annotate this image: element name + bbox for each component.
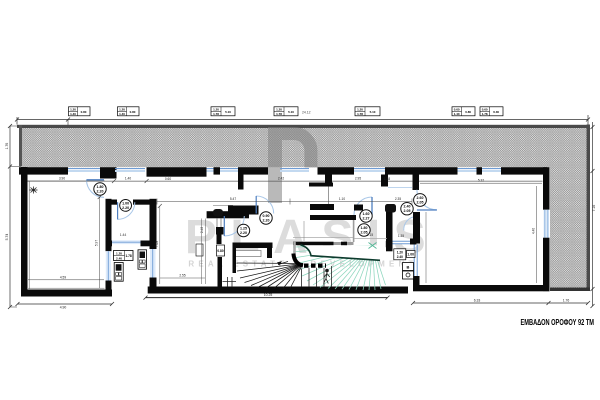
svg-text:2.40: 2.40	[397, 255, 403, 259]
svg-text:1.40: 1.40	[70, 112, 76, 116]
svg-text:1.40: 1.40	[454, 112, 460, 116]
svg-text:1.76: 1.76	[5, 143, 9, 150]
svg-text:0.60: 0.60	[454, 107, 460, 111]
svg-text:5.47: 5.47	[230, 197, 236, 201]
svg-text:1.40: 1.40	[125, 177, 131, 181]
svg-text:1.78: 1.78	[276, 112, 282, 116]
svg-text:2.20: 2.20	[263, 218, 270, 222]
svg-text:5.10: 5.10	[288, 110, 294, 114]
svg-text:5.97: 5.97	[95, 240, 99, 246]
svg-text:1.80: 1.80	[97, 185, 104, 189]
svg-text:24.12: 24.12	[302, 111, 311, 115]
svg-text:4.40: 4.40	[532, 228, 536, 234]
svg-text:1.00: 1.00	[122, 202, 129, 206]
svg-text:2.48: 2.48	[200, 227, 204, 233]
svg-text:2.20: 2.20	[97, 189, 104, 193]
svg-text:1.78: 1.78	[357, 112, 363, 116]
svg-text:1.40: 1.40	[119, 112, 125, 116]
svg-text:1.78: 1.78	[125, 254, 131, 258]
svg-text:7.16: 7.16	[592, 205, 596, 212]
svg-text:2.42: 2.42	[278, 177, 284, 181]
svg-text:10.25: 10.25	[264, 293, 273, 297]
svg-text:1.20: 1.20	[213, 107, 219, 111]
svg-text:1.20: 1.20	[276, 107, 282, 111]
svg-text:4.59: 4.59	[60, 275, 66, 279]
svg-text:0.80: 0.80	[130, 110, 136, 114]
svg-text:4.90: 4.90	[60, 306, 67, 310]
svg-text:1.15: 1.15	[367, 233, 373, 237]
svg-text:2.40: 2.40	[404, 205, 411, 209]
svg-text:1.10: 1.10	[339, 197, 345, 201]
svg-text:1.20: 1.20	[397, 251, 403, 255]
svg-text:5.32: 5.32	[478, 179, 484, 183]
svg-text:2.35: 2.35	[395, 197, 401, 201]
svg-text:2.55: 2.55	[179, 274, 185, 278]
svg-text:2.20: 2.20	[122, 206, 129, 210]
svg-text:0.80: 0.80	[217, 249, 223, 253]
svg-text:1.20: 1.20	[119, 107, 125, 111]
svg-text:1.38: 1.38	[384, 177, 390, 181]
svg-text:2.27: 2.27	[363, 216, 370, 220]
svg-text:0.80: 0.80	[81, 110, 87, 114]
svg-text:7.08: 7.08	[155, 241, 159, 247]
svg-text:1.25: 1.25	[240, 227, 247, 231]
svg-text:2.20: 2.20	[240, 231, 247, 235]
svg-text:1.44: 1.44	[120, 233, 127, 237]
svg-text:0.60: 0.60	[165, 177, 171, 181]
svg-text:6.33: 6.33	[474, 298, 481, 302]
svg-text:1.20: 1.20	[70, 107, 76, 111]
svg-text:1.78: 1.78	[482, 112, 488, 116]
svg-text:0.90: 0.90	[263, 214, 270, 218]
svg-text:5.74: 5.74	[5, 234, 9, 241]
svg-text:1.80: 1.80	[361, 226, 368, 230]
svg-text:5.10: 5.10	[370, 110, 376, 114]
svg-text:1.76: 1.76	[563, 298, 570, 302]
svg-text:1.60: 1.60	[363, 212, 370, 216]
svg-text:2.05: 2.05	[417, 200, 424, 204]
svg-text:1.20: 1.20	[357, 107, 363, 111]
svg-text:2.95: 2.95	[355, 177, 361, 181]
svg-text:6.30: 6.30	[493, 110, 499, 114]
svg-text:1.35: 1.35	[398, 234, 404, 238]
svg-text:2.05: 2.05	[404, 209, 411, 213]
svg-text:ΕΜΒΑΔΟΝ ΟΡΟΦΟΥ 92 ΤΜ: ΕΜΒΑΔΟΝ ΟΡΟΦΟΥ 92 ΤΜ	[521, 318, 595, 327]
svg-text:5.10: 5.10	[225, 110, 231, 114]
svg-text:2.40: 2.40	[116, 257, 122, 261]
svg-text:0.80: 0.80	[465, 110, 471, 114]
svg-text:B: B	[407, 264, 410, 269]
svg-text:1.00: 1.00	[407, 253, 414, 257]
svg-text:1.20: 1.20	[116, 252, 122, 256]
svg-text:0.60: 0.60	[482, 107, 488, 111]
svg-text:3.90: 3.90	[59, 177, 65, 181]
svg-text:2.60: 2.60	[417, 196, 424, 200]
svg-text:1.78: 1.78	[213, 112, 219, 116]
